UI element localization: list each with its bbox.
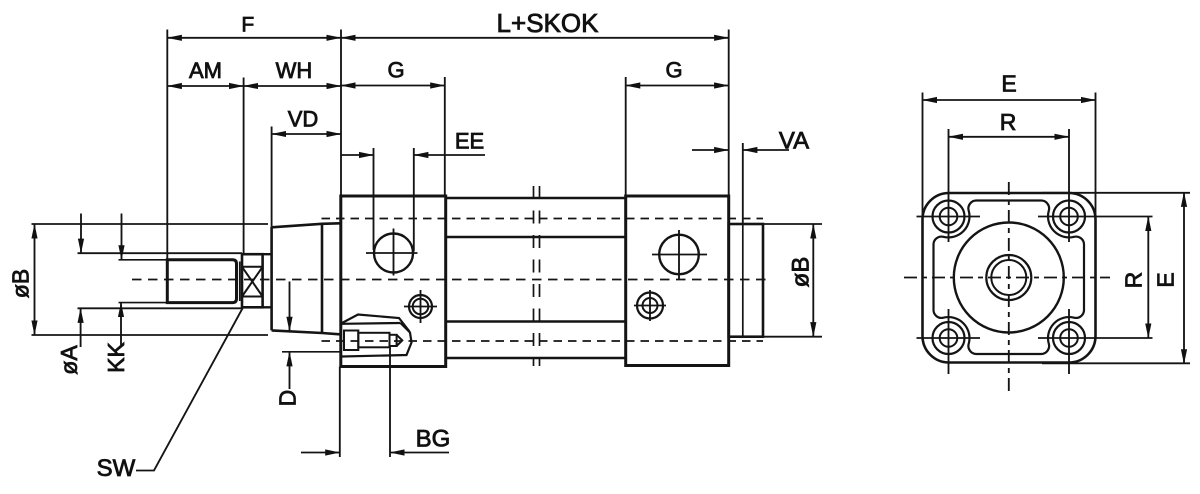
svg-text:øB: øB bbox=[8, 269, 34, 298]
svg-text:BG: BG bbox=[416, 426, 451, 453]
svg-text:G: G bbox=[387, 58, 404, 83]
svg-text:SW: SW bbox=[97, 455, 136, 482]
svg-text:VA: VA bbox=[779, 128, 809, 155]
svg-text:øA: øA bbox=[56, 345, 82, 375]
svg-text:F: F bbox=[241, 14, 254, 37]
svg-text:R: R bbox=[1121, 272, 1147, 289]
svg-text:øB: øB bbox=[788, 257, 815, 288]
svg-text:KK: KK bbox=[103, 342, 129, 373]
svg-text:E: E bbox=[1001, 71, 1016, 97]
svg-text:WH: WH bbox=[276, 58, 313, 83]
svg-text:AM: AM bbox=[189, 58, 222, 83]
svg-text:VD: VD bbox=[288, 107, 319, 132]
svg-text:D: D bbox=[275, 390, 301, 407]
svg-text:E: E bbox=[1153, 272, 1179, 287]
svg-text:R: R bbox=[1000, 109, 1017, 135]
svg-text:G: G bbox=[665, 58, 682, 83]
svg-text:EE: EE bbox=[455, 129, 484, 154]
svg-text:L+SKOK: L+SKOK bbox=[497, 8, 600, 38]
